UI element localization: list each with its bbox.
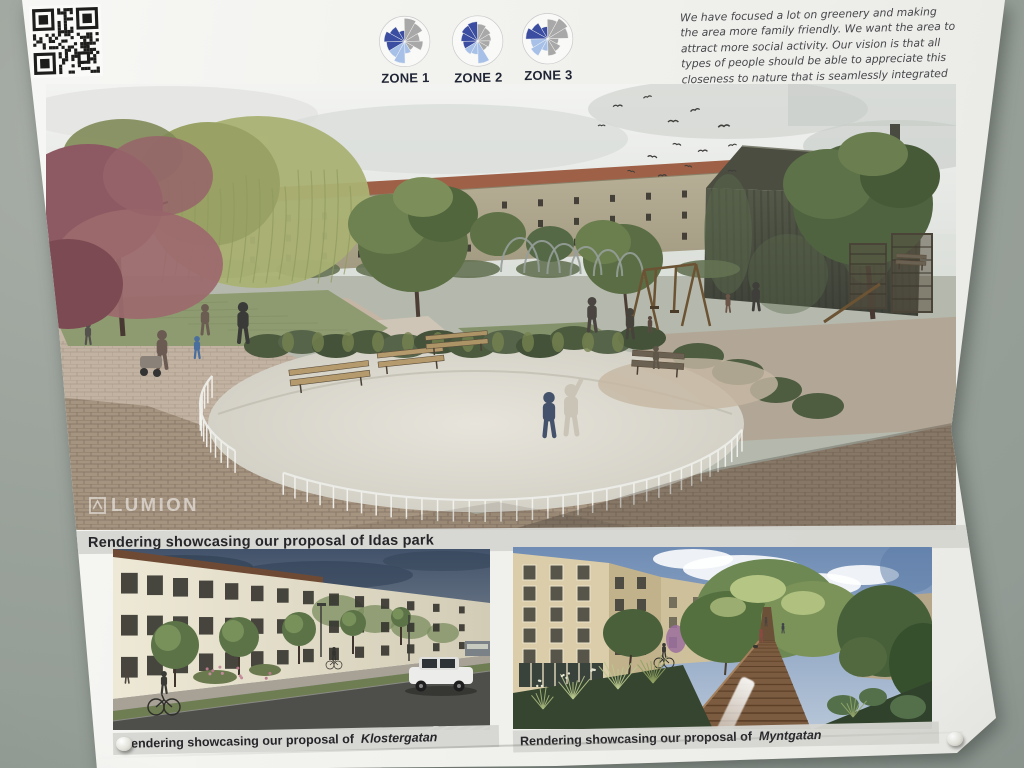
svg-text:LUMION: LUMION	[111, 494, 199, 515]
qr-code-icon	[29, 4, 103, 78]
zone-2: ZONE 2	[446, 12, 509, 85]
zone-1: ZONE 1	[373, 13, 436, 86]
zone-2-rose-chart	[449, 13, 506, 70]
push-pin	[116, 737, 132, 751]
myntgatan-rendering	[513, 547, 932, 729]
klostergatan-rendering	[113, 549, 490, 730]
idas-park-rendering: LUMION	[46, 84, 956, 530]
zone-1-rose-chart	[376, 13, 433, 70]
zone-3-label: ZONE 3	[517, 67, 579, 83]
poster-shadow-wrap: ZONE 1 ZONE 2 ZONE 3 We have focused a l…	[0, 0, 1024, 768]
poster: ZONE 1 ZONE 2 ZONE 3 We have focused a l…	[0, 0, 1024, 768]
zone-3: ZONE 3	[516, 10, 579, 83]
photo-of-poster-on-wall: ZONE 1 ZONE 2 ZONE 3 We have focused a l…	[0, 0, 1024, 768]
zone-3-rose-chart	[519, 10, 576, 67]
push-pin	[947, 732, 963, 746]
